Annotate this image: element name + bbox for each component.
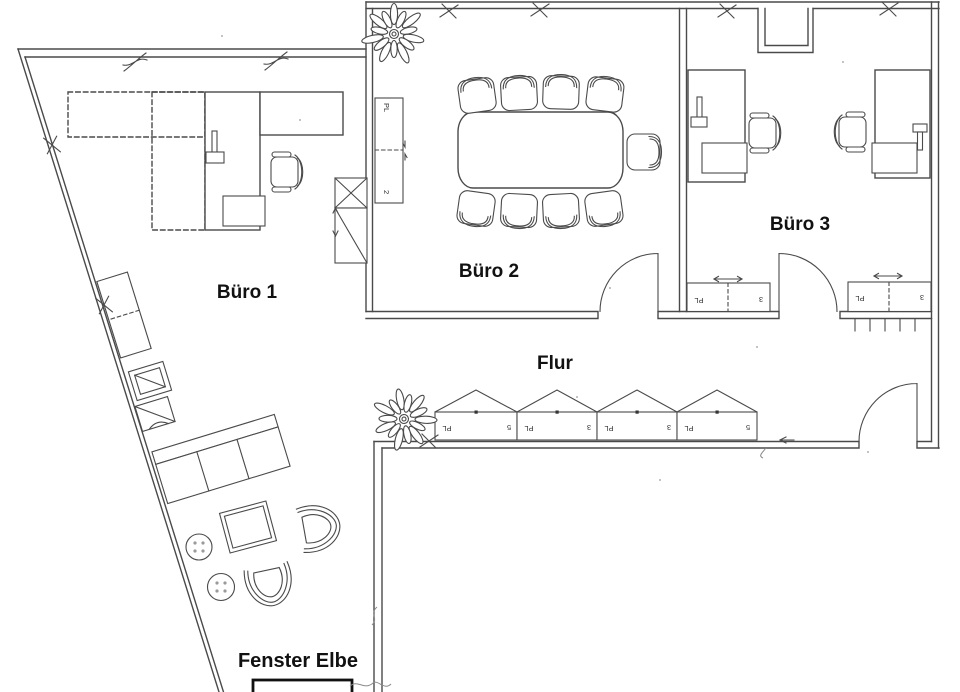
desk-extension-dashed: [152, 92, 205, 230]
sideboard-buero3-right: [848, 273, 931, 311]
keyboard-icon: [691, 117, 707, 127]
drawer-container: [872, 143, 917, 173]
cabinet-label: PL: [684, 424, 693, 433]
cabinet-label: PL: [524, 424, 533, 433]
conference-chair: [457, 75, 497, 114]
monitor-icon: [918, 132, 923, 150]
office-chair-buero1: [271, 152, 303, 192]
cabinet-label: 5: [746, 423, 750, 432]
sideboard-buero3-left: [687, 276, 770, 311]
door-corridor: [859, 384, 917, 442]
conference-chair-head: [627, 134, 662, 170]
conference-chair: [500, 75, 538, 111]
printer-stand: [128, 361, 171, 400]
sofa: [152, 414, 290, 503]
coffee-table: [220, 501, 277, 553]
door-buero2: [600, 254, 658, 312]
room-label-buero3: Büro 3: [770, 214, 830, 235]
pouf-1: [186, 534, 212, 560]
wall-top-buero1: [18, 49, 366, 57]
cabinet-crossed: [333, 178, 367, 263]
conference-chair: [585, 74, 625, 113]
cabinet-label: PL: [442, 424, 451, 433]
cabinet-label: PL: [604, 424, 613, 433]
monitor-icon: [212, 131, 217, 155]
wall-top-buero2-3: [366, 2, 939, 9]
conference-chair: [542, 193, 580, 229]
armchair-2: [243, 562, 296, 611]
conference-chair: [500, 193, 538, 229]
door-buero3: [779, 254, 837, 312]
buero3-furniture: [687, 70, 931, 331]
window-elbe-label: Fenster Elbe: [238, 650, 358, 672]
plant-icon: [359, 374, 447, 461]
flur-cabinets: [435, 390, 757, 440]
armchair-1: [296, 501, 343, 553]
wall-buero2-buero3: [680, 9, 687, 312]
monitor-icon: [697, 97, 702, 119]
room-label-flur: Flur: [537, 353, 573, 374]
desk-side-table: [260, 92, 343, 135]
sideboard-label: 2: [382, 190, 391, 194]
sideboard-label: PL: [855, 294, 864, 303]
buero1-furniture: [68, 92, 367, 692]
sideboard-label: PL: [694, 296, 703, 305]
conference-table: [458, 112, 623, 188]
drawer-container: [702, 143, 747, 173]
cabinet-label: 3: [667, 423, 671, 432]
drawer-container: [223, 196, 265, 226]
window-sill-table: [253, 680, 352, 692]
keyboard-icon: [206, 152, 224, 163]
cabinet-label: 5: [507, 423, 511, 432]
conference-chair: [456, 190, 496, 229]
desk-return-dashed: [68, 92, 205, 137]
wall-buero1-buero2: [366, 2, 373, 312]
room-label-buero1: Büro 1: [217, 282, 278, 303]
floorplan-canvas: Büro 1 Büro 2 Büro 3 Flur Fenster Elbe P…: [0, 0, 960, 692]
office-chair-buero3-right: [834, 112, 866, 152]
pouf-2: [208, 574, 235, 601]
sideboard-label: PL: [382, 103, 391, 112]
equipment-stand: [135, 397, 175, 432]
room-label-buero2: Büro 2: [459, 261, 519, 282]
sideboard-label: 3: [920, 293, 924, 302]
buero2-furniture: [375, 74, 662, 230]
conference-chair: [584, 190, 624, 229]
floorplan-drawing: Büro 1 Büro 2 Büro 3 Flur Fenster Elbe P…: [0, 0, 960, 692]
sideboard-label: 3: [759, 295, 763, 304]
sideboard-buero2: [375, 98, 407, 203]
conference-chair: [542, 74, 579, 110]
keyboard-icon: [913, 124, 927, 132]
wall-diagonal-window: [18, 49, 224, 692]
wall-right-outer: [932, 2, 939, 448]
wall-offices-bottom: [366, 312, 932, 319]
radiator-ticks: [855, 319, 915, 331]
wall-lounge-right: [374, 442, 382, 692]
wall-corridor-bottom: [374, 442, 939, 449]
cabinet-label: 3: [587, 423, 591, 432]
office-chair-buero3-left: [749, 113, 781, 153]
plant-icon: [361, 4, 424, 65]
